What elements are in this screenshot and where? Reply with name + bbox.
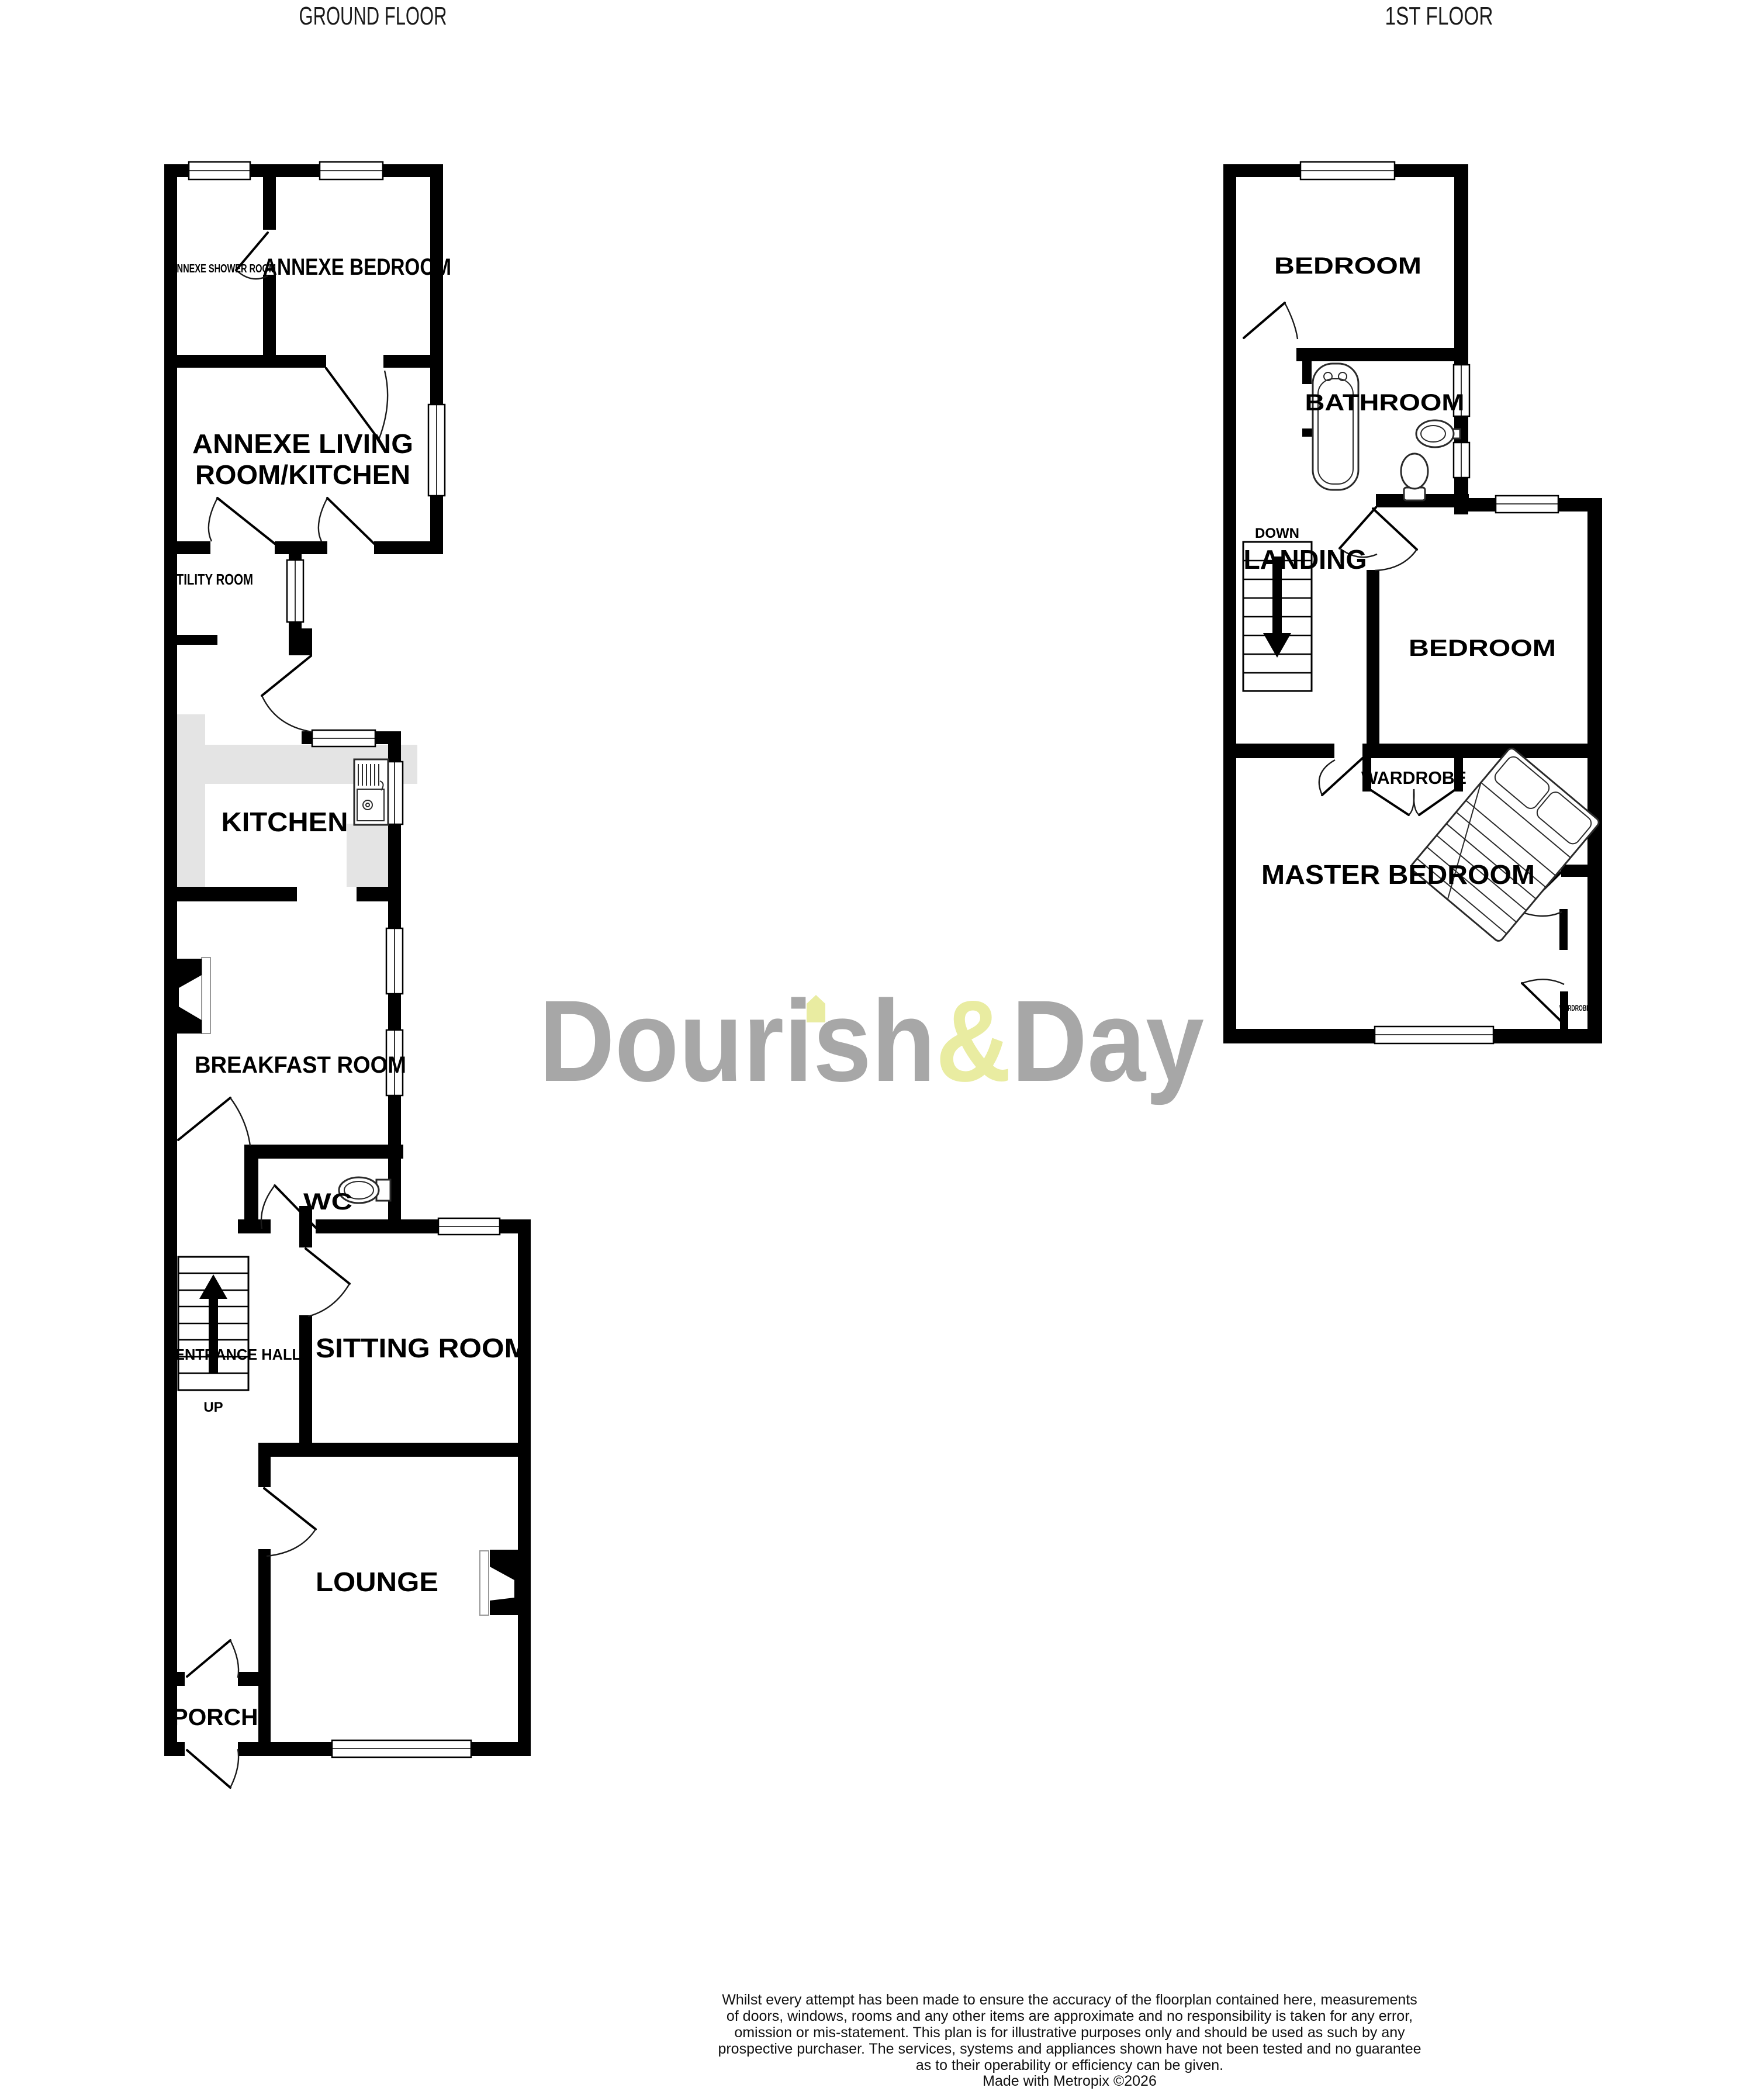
label-annexe-bedroom: ANNEXE BEDROOM	[263, 254, 451, 280]
label-porch: PORCH	[172, 1705, 258, 1730]
bathroom-toilet	[1401, 454, 1428, 500]
watermark-part1: Dourish	[539, 976, 936, 1105]
watermark-part2: Day	[1011, 976, 1204, 1105]
label-utility-room: UTILITY ROOM	[168, 571, 253, 588]
svg-text:Dourish&Day: Dourish&Day	[539, 976, 1204, 1105]
bathtub	[1313, 364, 1358, 490]
label-bathroom: BATHROOM	[1305, 390, 1465, 416]
stairs-up	[178, 1257, 248, 1390]
first-floor-title: 1ST FLOOR	[1385, 2, 1493, 30]
disclaimer-line-1: Whilst every attempt has been made to en…	[722, 1992, 1417, 2008]
ground-walls	[164, 164, 531, 1756]
label-annexe-living-1: ANNEXE LIVING	[192, 428, 413, 459]
watermark-logo: Dourish&Day	[539, 976, 1204, 1105]
floorplan-page: ANNEXE SHOWER ROOM ANNEXE BEDROOM ANNEXE…	[0, 0, 1764, 2091]
kitchen-sink	[354, 759, 388, 825]
ground-floor-plan: ANNEXE SHOWER ROOM ANNEXE BEDROOM ANNEXE…	[164, 162, 531, 1788]
breakfast-fireplace	[177, 958, 210, 1034]
label-wardrobe-small: WARDROBE	[1559, 1003, 1590, 1012]
floorplan-canvas: ANNEXE SHOWER ROOM ANNEXE BEDROOM ANNEXE…	[0, 0, 1764, 2091]
disclaimer-line-5: as to their operability or efficiency ca…	[916, 2057, 1223, 2073]
disclaimer-credit: Made with Metropix ©2026	[983, 2073, 1157, 2089]
label-master-bedroom: MASTER BEDROOM	[1261, 859, 1535, 890]
first-floor-plan: BEDROOM BATHROOM DOWN LANDING BEDROOM WA…	[1223, 162, 1602, 1043]
watermark-ampersand: &	[936, 976, 1012, 1105]
ground-floor-title: GROUND FLOOR	[299, 2, 447, 30]
label-annexe-shower-room: ANNEXE SHOWER ROOM	[171, 262, 276, 275]
disclaimer-text: Whilst every attempt has been made to en…	[718, 1992, 1421, 2089]
disclaimer-line-4: prospective purchaser. The services, sys…	[718, 2041, 1421, 2057]
label-landing: LANDING	[1244, 544, 1367, 575]
label-up: UP	[203, 1399, 223, 1415]
label-down: DOWN	[1255, 526, 1299, 541]
label-bedroom-middle: BEDROOM	[1409, 635, 1556, 661]
label-wardrobe: WARDROBE	[1361, 768, 1466, 788]
label-wc: WC	[303, 1189, 352, 1215]
label-kitchen: KITCHEN	[222, 807, 348, 837]
ground-windows	[189, 162, 500, 1757]
disclaimer-line-2: of doors, windows, rooms and any other i…	[727, 2008, 1413, 2024]
label-breakfast-room: BREAKFAST ROOM	[195, 1052, 406, 1078]
label-lounge: LOUNGE	[316, 1567, 438, 1597]
label-annexe-living-2: ROOM/KITCHEN	[195, 459, 410, 490]
disclaimer-line-3: omission or mis-statement. This plan is …	[734, 2024, 1405, 2041]
lounge-fireplace	[480, 1550, 518, 1615]
label-entrance-hall: ENTRANCE HALL	[175, 1346, 301, 1363]
label-sitting-room: SITTING ROOM	[316, 1333, 528, 1363]
label-bedroom-front: BEDROOM	[1274, 253, 1421, 279]
